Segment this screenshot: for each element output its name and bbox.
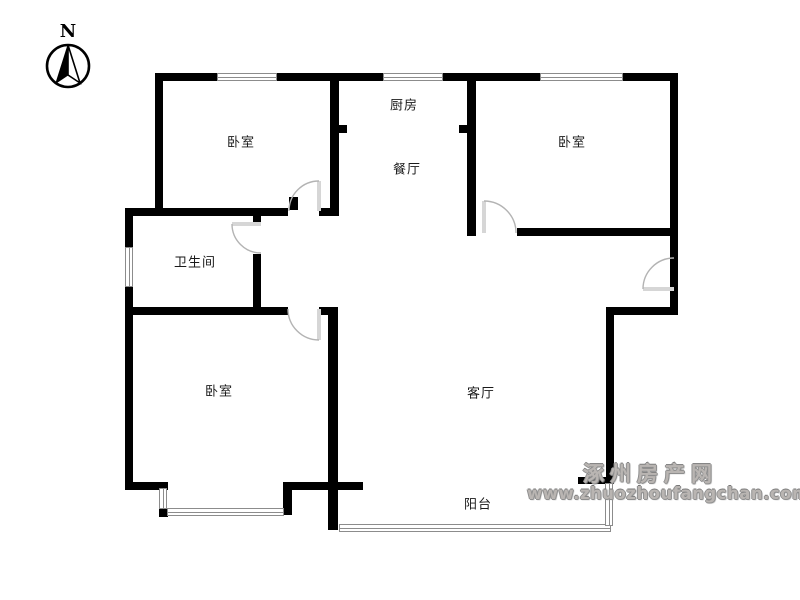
room-label-kitchen: 厨房 xyxy=(390,100,418,113)
room-label-layer: 卧室 厨房 餐厅 卧室 卫生间 卧室 客厅 阳台 xyxy=(0,0,800,600)
compass-north-icon: N xyxy=(40,20,96,94)
room-label-balcony: 阳台 xyxy=(464,499,492,512)
room-label-dining-room: 餐厅 xyxy=(393,164,421,177)
floorplan-canvas: 卧室 厨房 餐厅 卧室 卫生间 卧室 客厅 阳台 N 涿州房产网 www.zhu… xyxy=(0,0,800,600)
room-label-bathroom: 卫生间 xyxy=(174,257,216,270)
compass-n-label: N xyxy=(60,21,76,42)
room-label-bedroom-top-right: 卧室 xyxy=(558,137,586,150)
room-label-bedroom-top-left: 卧室 xyxy=(227,137,255,150)
room-label-bedroom-bottom-left: 卧室 xyxy=(205,386,233,399)
room-label-living-room: 客厅 xyxy=(467,388,495,401)
watermark-site-url: www.zhuozhoufangchan.com xyxy=(527,484,800,503)
compass-needle-light-half xyxy=(68,45,80,83)
compass-needle-dark-half xyxy=(56,45,68,83)
